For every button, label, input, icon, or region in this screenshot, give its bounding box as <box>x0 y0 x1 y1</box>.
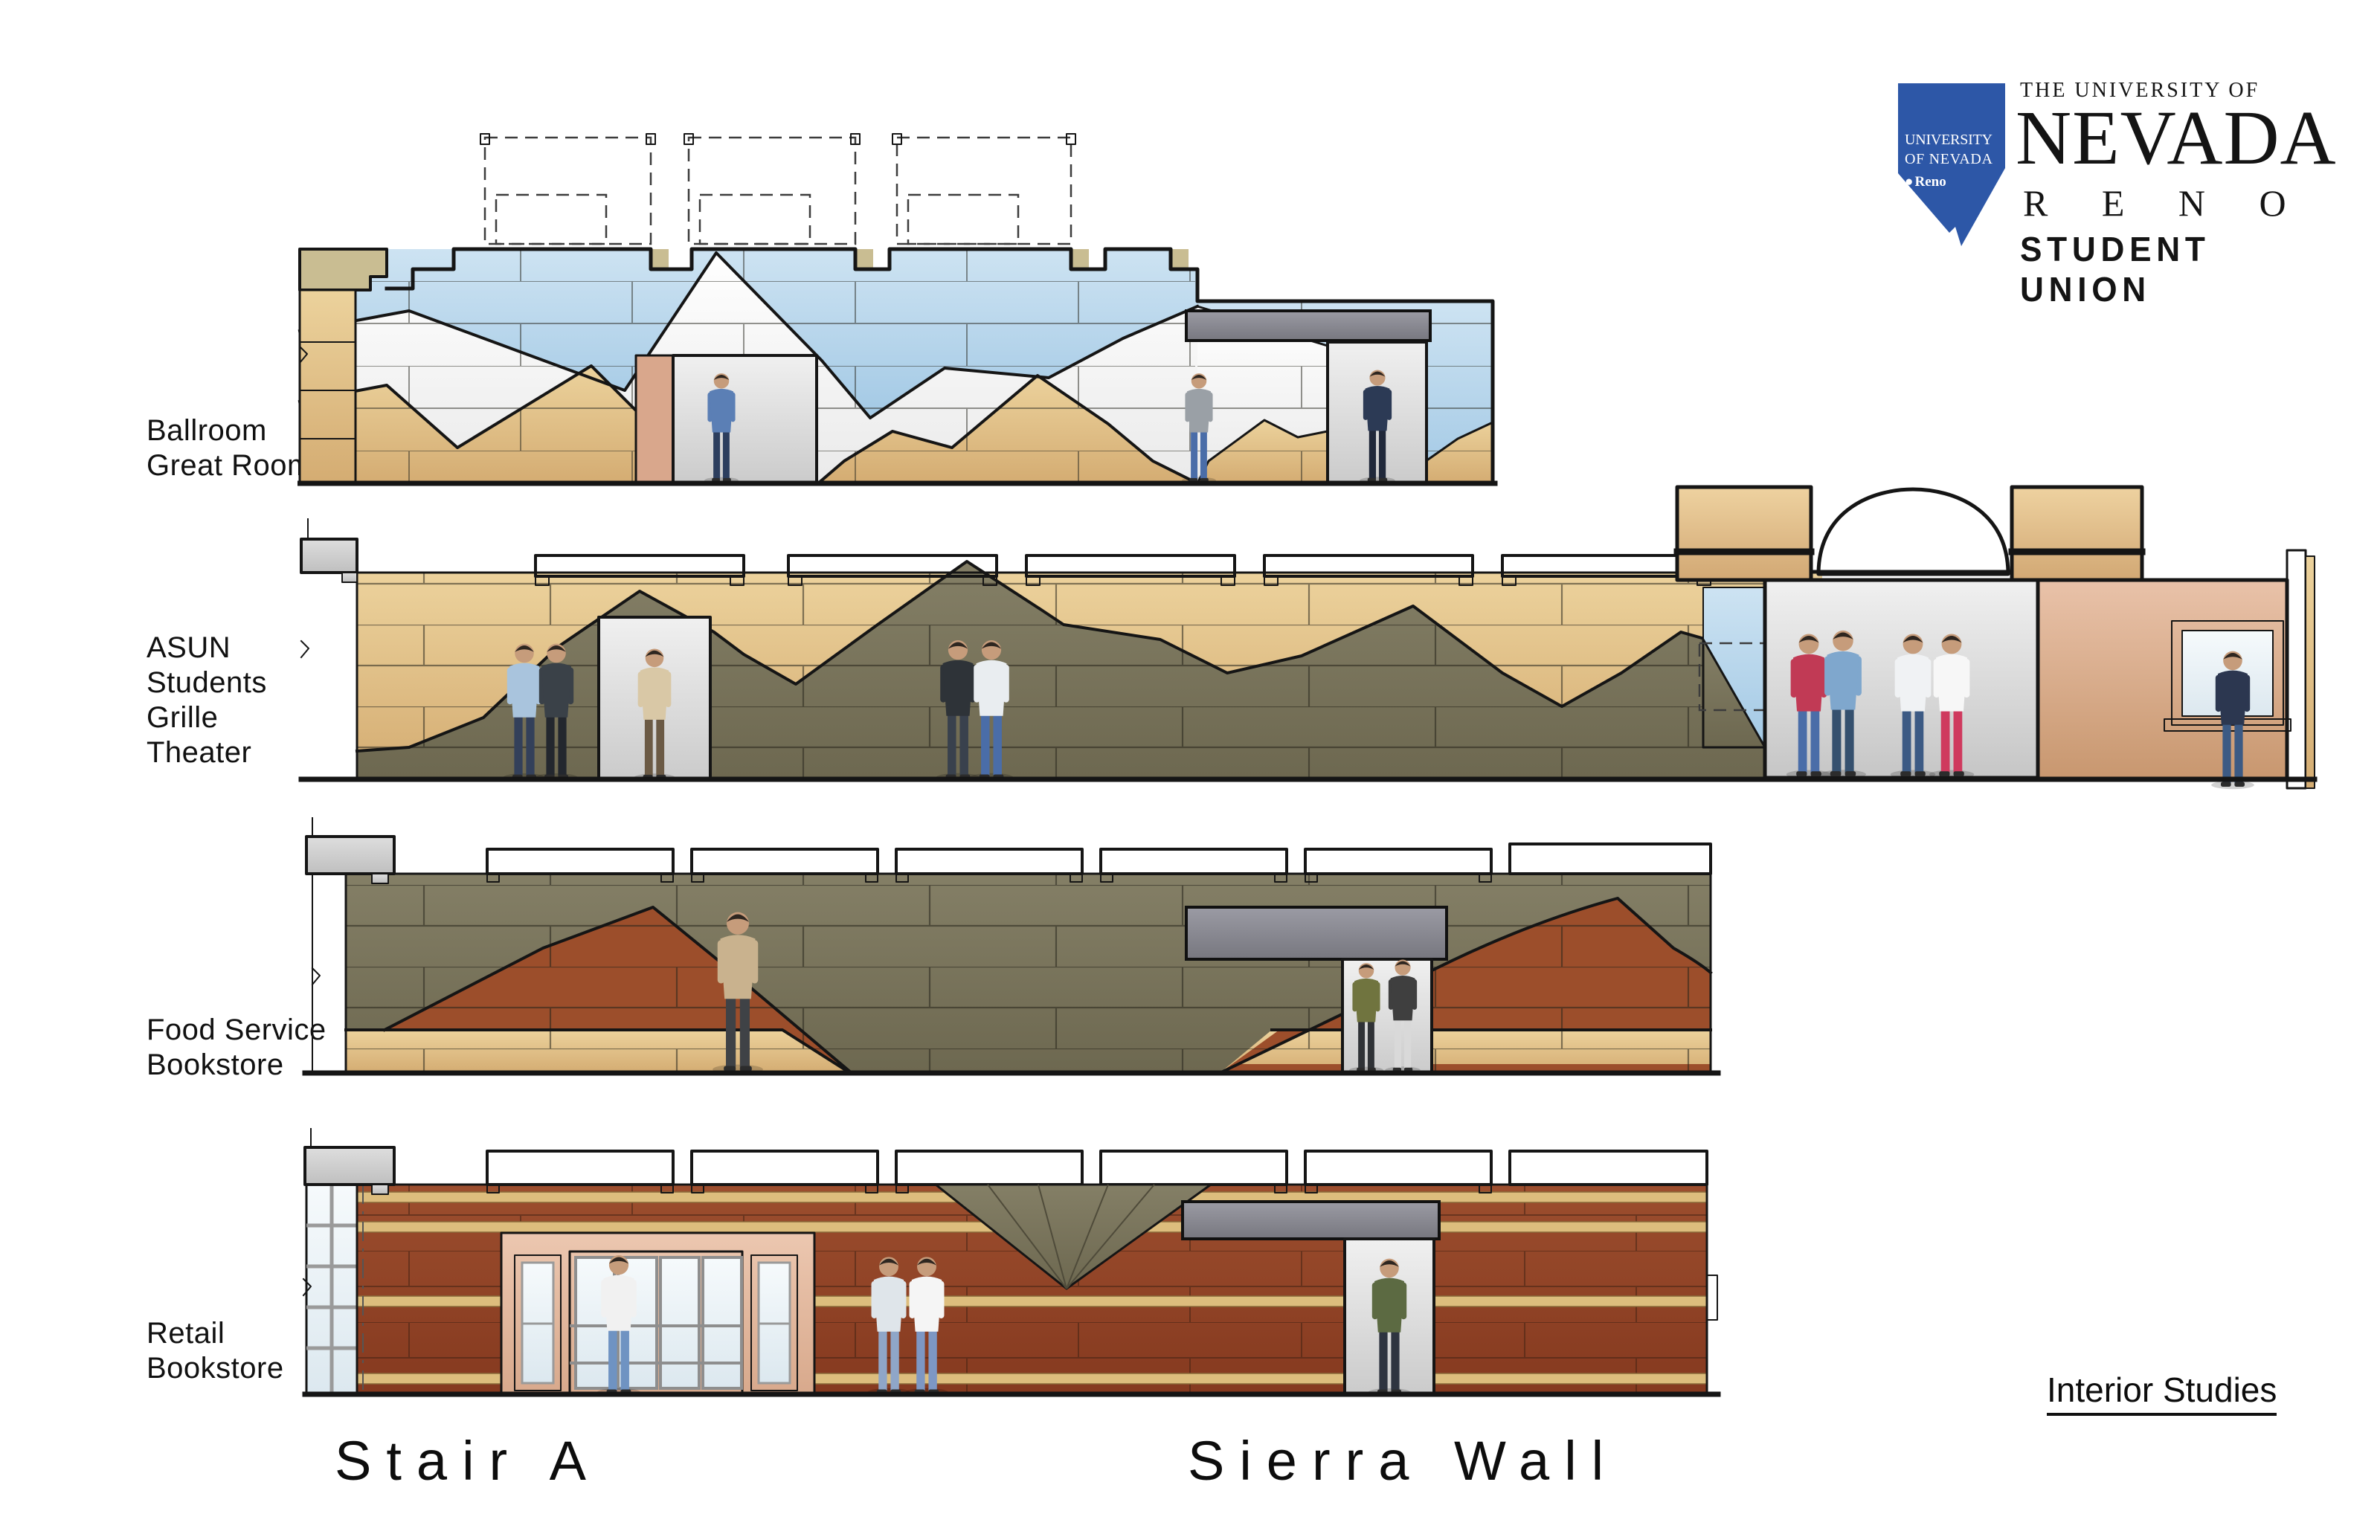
elevation-drawing-retail-bookstore <box>297 1108 1725 1405</box>
right-edge-tab <box>1707 1275 1717 1320</box>
wall-field <box>346 874 1711 1073</box>
label-line: Grille <box>147 700 267 735</box>
label-line: Great Room <box>147 448 312 483</box>
university-logo: UNIVERSITY OF NEVADA ●Reno THE UNIVERSIT… <box>1895 74 2349 257</box>
state-label-line1: UNIVERSITY <box>1905 132 1993 148</box>
left-pilaster <box>300 290 356 483</box>
label-line: Students <box>147 666 267 700</box>
door-sign-band <box>1183 1202 1439 1239</box>
label-retail-bookstore: Retail Bookstore <box>147 1316 284 1386</box>
label-asun-students-grille-theater: ASUN Students Grille Theater <box>147 631 267 770</box>
state-label-line2: OF NEVADA <box>1905 151 1993 167</box>
masonry-joints <box>346 874 1711 1073</box>
logo-city: R E N O <box>2023 184 2309 222</box>
caption-stair-a: Stair A <box>335 1429 601 1492</box>
entry-bay <box>1765 580 2038 779</box>
caption-sierra-wall: Sierra Wall <box>1188 1429 1618 1492</box>
clerestory-dashed-outline <box>480 134 1075 244</box>
door-opening <box>1342 959 1432 1074</box>
label-line: Retail <box>147 1316 284 1351</box>
interior-studies-board: UNIVERSITY OF NEVADA ●Reno THE UNIVERSIT… <box>0 0 2380 1540</box>
door-sign-band <box>1186 907 1447 959</box>
break-mark <box>301 641 309 657</box>
elevation-drawing-ballroom-great-room <box>297 112 1502 498</box>
caption-interior-studies: Interior Studies <box>2047 1370 2277 1416</box>
logo-unit: STUDENT UNION <box>2020 229 2335 309</box>
wall-field <box>300 249 1493 483</box>
right-edge-sliver <box>2306 556 2315 788</box>
door-sign-band <box>1186 311 1430 341</box>
break-mark <box>312 874 320 1073</box>
tower <box>2012 487 2142 580</box>
salmon-wall <box>2038 550 2315 789</box>
label-line: ASUN <box>147 631 267 666</box>
logo-university-name: NEVADA <box>2016 100 2337 177</box>
elevation-drawing-asun-students-grille-theater <box>297 461 2320 803</box>
masonry-joints <box>357 573 1822 779</box>
label-line: Bookstore <box>147 1351 284 1386</box>
dome <box>1810 489 2016 581</box>
right-jamb <box>2287 550 2306 788</box>
label-line: Ballroom <box>147 413 312 448</box>
door-opening <box>599 617 710 782</box>
state-label-reno: ●Reno <box>1905 174 1946 190</box>
door-opening <box>1345 1239 1434 1396</box>
label-ballroom-great-room: Ballroom Great Room <box>147 413 312 483</box>
curtain-wall <box>303 1185 357 1394</box>
sidelight <box>515 1255 561 1391</box>
nevada-state-icon: UNIVERSITY OF NEVADA ●Reno <box>1895 80 2008 250</box>
storefront <box>501 1233 814 1396</box>
label-line: Theater <box>147 735 267 770</box>
tower <box>1677 487 1811 580</box>
elevation-drawing-food-service-bookstore <box>297 803 1725 1082</box>
sidelight <box>751 1255 797 1391</box>
wall-field <box>357 561 1822 779</box>
glass-doors <box>570 1251 742 1394</box>
